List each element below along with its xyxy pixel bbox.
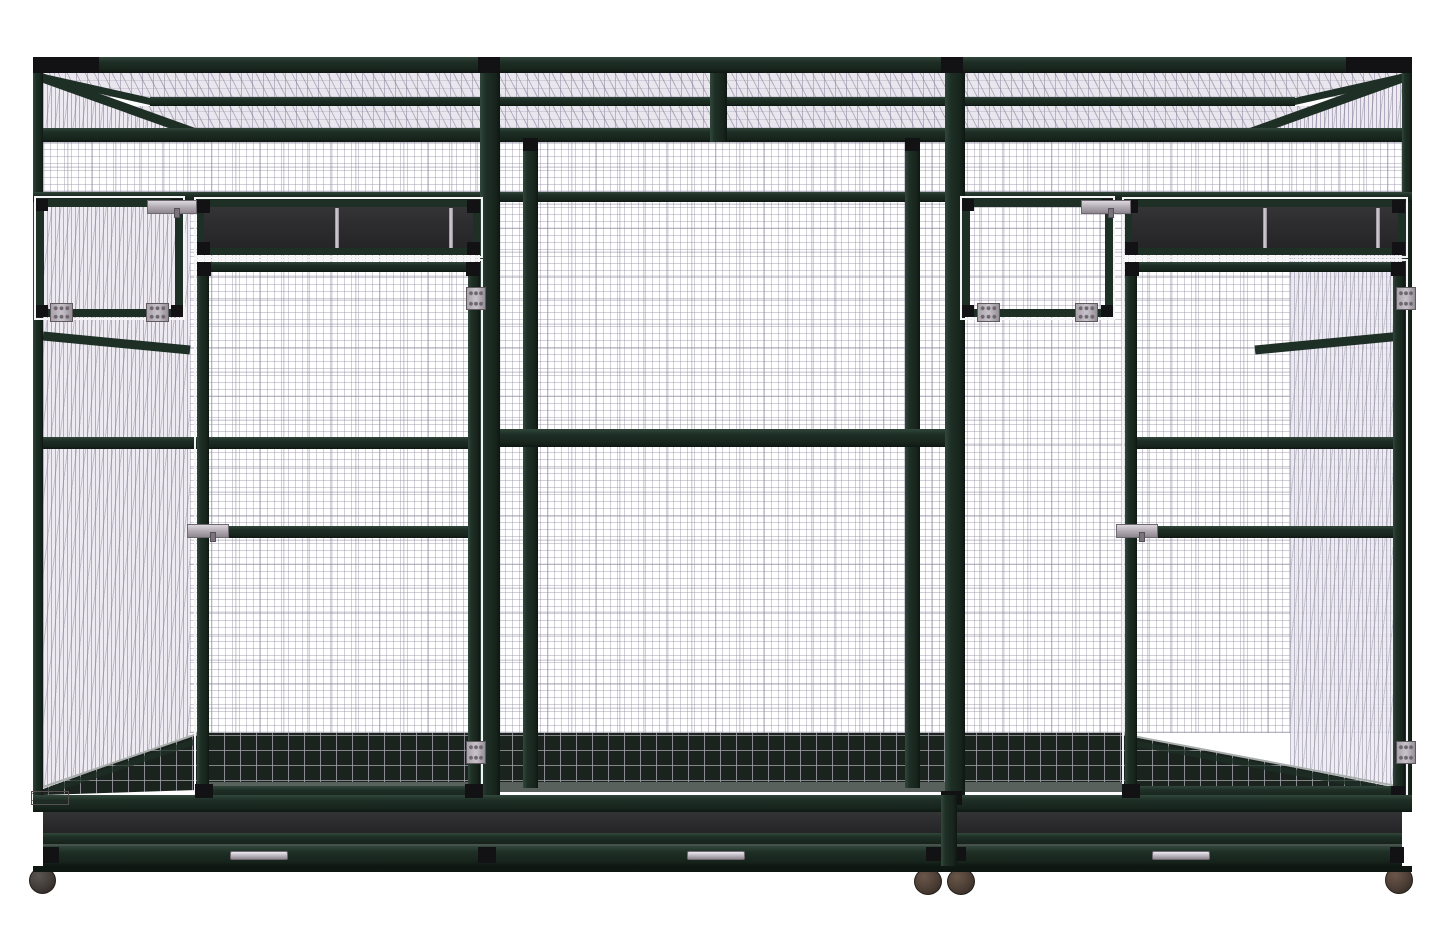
feeder-door-right	[962, 199, 1113, 317]
top-beam	[33, 57, 1412, 73]
door-hinge	[1396, 287, 1416, 310]
door-hinge	[466, 741, 486, 764]
feeder-door-right-latch	[1081, 200, 1131, 214]
top-beam-corner-block-right	[1346, 57, 1412, 73]
section-post-1	[480, 73, 500, 795]
ceiling-center-divider	[710, 73, 727, 142]
large-door-right-outline	[1122, 259, 1408, 803]
tray-row-block	[1390, 847, 1404, 863]
brand-nameplate	[31, 791, 69, 805]
tray-row-block	[43, 847, 59, 863]
large-door-left-latch	[187, 524, 229, 538]
section-post-2	[945, 73, 965, 795]
feeder-door-hinge	[977, 303, 1000, 322]
tray-handle-right	[1152, 851, 1210, 860]
feeder-door-hinge	[1075, 303, 1098, 322]
band-left-metal-strip	[335, 208, 339, 248]
base-joint-block	[195, 784, 213, 798]
center-stile-bracket-right	[905, 138, 920, 151]
tray-handle-left	[230, 851, 288, 860]
feeder-door-right-corner	[962, 199, 974, 211]
feeder-door-left-corner	[36, 305, 48, 317]
center-door-stile-left	[523, 142, 538, 788]
large-door-right-corner	[1391, 262, 1405, 276]
tray-handle-center	[687, 851, 745, 860]
band-right-corner	[1392, 242, 1405, 255]
center-door-stile-right	[905, 142, 920, 788]
large-door-right-latch	[1116, 524, 1158, 538]
tray-row-block	[926, 847, 942, 861]
large-door-left-corner	[466, 262, 480, 276]
band-left-corner	[467, 200, 480, 213]
top-beam-joint-block-2	[941, 57, 963, 73]
large-door-left-stile-right	[468, 262, 480, 800]
feeder-door-left	[36, 199, 183, 317]
feeder-door-hinge	[50, 303, 73, 322]
band-right-metal-strip	[1263, 208, 1267, 248]
center-stile-bracket-left	[523, 138, 538, 151]
base-joint-block	[1122, 784, 1140, 798]
band-left-corner	[197, 242, 210, 255]
band-left-corner	[467, 242, 480, 255]
top-beam-joint-block-1	[478, 57, 500, 73]
band-right-metal-strip	[1376, 208, 1380, 248]
door-hinge	[466, 287, 486, 310]
band-right-corner	[1125, 242, 1138, 255]
large-door-right-corner	[1125, 262, 1139, 276]
feeder-door-left-corner	[171, 305, 183, 317]
large-door-right-top-rail	[1125, 262, 1405, 272]
outer-post-left	[33, 57, 43, 800]
base-bottom-edge	[33, 866, 1412, 872]
door-hinge	[1396, 741, 1416, 764]
band-right-corner	[1392, 200, 1405, 213]
base-unit-seam	[941, 795, 957, 871]
feeder-door-left-latch	[147, 200, 197, 214]
base-recess-band	[43, 812, 1402, 833]
base-joint-block	[465, 784, 483, 798]
band-left-corner	[197, 200, 210, 213]
base-top-rail	[33, 795, 1412, 812]
caster-wheel	[914, 868, 942, 895]
feeder-door-right-corner	[1101, 305, 1113, 317]
feeder-door-left-corner	[36, 199, 48, 211]
large-door-left-outline	[194, 259, 483, 803]
band-left-metal-strip	[449, 208, 453, 248]
large-door-right-stile-right	[1393, 262, 1405, 800]
center-door-mid-rail	[500, 429, 945, 447]
aviary-cage-render	[0, 0, 1445, 927]
feeder-door-hinge	[146, 303, 169, 322]
caster-wheel	[947, 868, 975, 895]
large-door-left-corner	[197, 262, 211, 276]
top-beam-corner-block-left	[33, 57, 99, 73]
feeder-door-right-corner	[962, 305, 974, 317]
large-door-left-top-rail	[197, 262, 480, 272]
tray-row-block	[478, 847, 496, 863]
